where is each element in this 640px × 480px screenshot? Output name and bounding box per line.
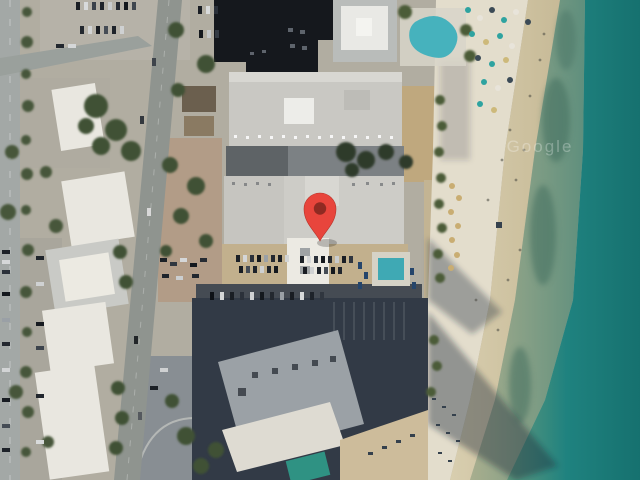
white-tower (333, 0, 397, 62)
satellite-imagery: Google (0, 0, 640, 480)
google-watermark: Google (507, 137, 574, 156)
pin-dot (314, 202, 326, 214)
small-roadside-structures (182, 86, 216, 136)
south-tower-complex (192, 284, 428, 480)
satellite-map-view[interactable]: Google (0, 0, 640, 480)
hotel-roof (229, 72, 402, 146)
